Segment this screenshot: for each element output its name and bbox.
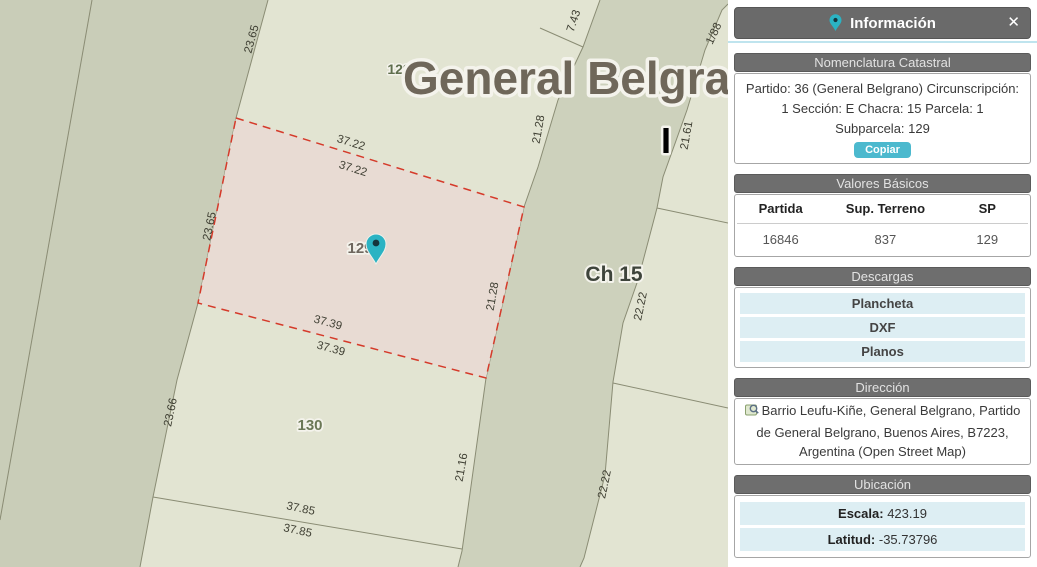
section-title-valores: Valores Básicos <box>734 174 1031 193</box>
copy-button[interactable]: Copiar <box>854 142 911 158</box>
panel-title: Información <box>850 15 936 32</box>
column-header-partida: Partida <box>737 197 824 224</box>
download-dxf[interactable]: DXF <box>740 317 1025 338</box>
nomenclatura-box: Partido: 36 (General Belgrano) Circunscr… <box>734 73 1031 164</box>
section-label-roman-i: I <box>661 120 671 161</box>
section-title-direccion: Dirección <box>734 378 1031 397</box>
value-sup-terreno: 837 <box>824 224 946 251</box>
chacra-label-ch15: Ch 15 <box>585 263 643 286</box>
parcel-label-130: 130 <box>297 417 322 434</box>
ubicacion-row-latitud: Latitud: -35.73796 <box>740 528 1025 551</box>
info-panel: Información ✕ Nomenclatura Catastral Par… <box>728 0 1037 567</box>
section-valores: Valores Básicos Partida Sup. Terreno SP … <box>734 174 1031 257</box>
ubicacion-row-escala: Escala: 423.19 <box>740 502 1025 525</box>
section-title-ubicacion: Ubicación <box>734 475 1031 494</box>
descargas-box: Plancheta DXF Planos <box>734 287 1031 368</box>
info-panel-header: Información ✕ <box>734 7 1031 39</box>
close-icon[interactable]: ✕ <box>1007 14 1020 32</box>
section-title-descargas: Descargas <box>734 267 1031 286</box>
valores-box: Partida Sup. Terreno SP 16846 837 129 <box>734 194 1031 257</box>
nomenclatura-line1: Partido: 36 (General Belgrano) Circunscr… <box>737 79 1028 99</box>
section-descargas: Descargas Plancheta DXF Planos <box>734 267 1031 368</box>
section-nomenclatura: Nomenclatura Catastral Partido: 36 (Gene… <box>734 53 1031 164</box>
map-search-icon <box>745 403 759 423</box>
section-ubicacion: Ubicación Escala: 423.19 Latitud: -35.73… <box>734 475 1031 558</box>
ubicacion-box: Escala: 423.19 Latitud: -35.73796 <box>734 495 1031 558</box>
nomenclatura-line3: Subparcela: 129 <box>737 119 1028 139</box>
value-sp: 129 <box>947 224 1028 251</box>
latitud-value: -35.73796 <box>879 532 938 547</box>
escala-value: 423.19 <box>887 506 927 521</box>
escala-label: Escala: <box>838 506 884 521</box>
column-header-sp: SP <box>947 197 1028 224</box>
map-pin-icon <box>829 14 842 32</box>
direccion-text: Barrio Leufu-Kiñe, General Belgrano, Par… <box>756 403 1020 459</box>
section-title-nomenclatura: Nomenclatura Catastral <box>734 53 1031 72</box>
value-partida: 16846 <box>737 224 824 251</box>
panel-accent-line <box>728 41 1037 43</box>
column-header-sup-terreno: Sup. Terreno <box>824 197 946 224</box>
map-title-general-belgrano: General Belgrano <box>403 52 728 104</box>
section-direccion: Dirección Barrio Leufu-Kiñe, General Bel… <box>734 378 1031 465</box>
download-plancheta[interactable]: Plancheta <box>740 293 1025 314</box>
map-canvas[interactable]: 128 General Belgrano 23.65 23.65 37.22 3… <box>0 0 728 567</box>
download-planos[interactable]: Planos <box>740 341 1025 362</box>
nomenclatura-line2: 1 Sección: E Chacra: 15 Parcela: 1 <box>737 99 1028 119</box>
table-row: 16846 837 129 <box>737 224 1028 251</box>
direccion-box: Barrio Leufu-Kiñe, General Belgrano, Par… <box>734 398 1031 465</box>
latitud-label: Latitud: <box>828 532 876 547</box>
cadastral-viewer: 128 General Belgrano 23.65 23.65 37.22 3… <box>0 0 1037 567</box>
